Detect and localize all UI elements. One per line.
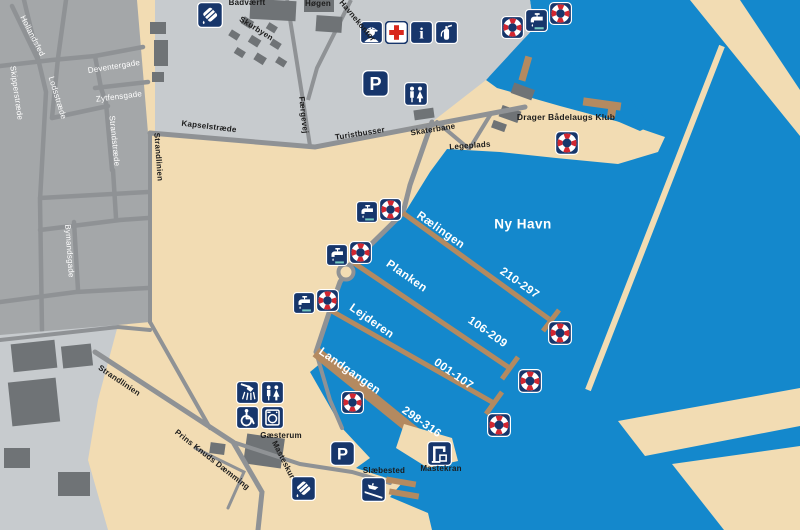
lifebuoy-icon xyxy=(379,198,402,221)
harbor-name-label: Ny Havn xyxy=(494,217,552,231)
place-label-slaebested: Slæbested xyxy=(363,467,405,475)
oil-drum-icon xyxy=(291,476,316,501)
water-tap-icon xyxy=(356,201,378,223)
toilets-icon xyxy=(404,82,428,106)
water-tap-icon xyxy=(326,244,348,266)
lifebuoy-icon xyxy=(501,16,524,39)
wheelchair-icon xyxy=(236,406,259,429)
fire-extinguisher-icon xyxy=(435,21,458,44)
lifebuoy-icon xyxy=(316,289,339,312)
parking-icon xyxy=(362,70,389,97)
place-label-baadvaerft: Bådværft xyxy=(229,0,266,7)
lifebuoy-icon xyxy=(349,241,372,264)
water-tap-icon xyxy=(293,292,315,314)
lifebuoy-icon xyxy=(555,131,579,155)
lifebuoy-icon xyxy=(487,413,511,437)
lifebuoy-icon xyxy=(518,369,542,393)
harbor-map: P xyxy=(0,0,800,530)
parking-icon xyxy=(330,441,355,466)
lifebuoy-icon xyxy=(341,391,364,414)
oil-drum-icon xyxy=(197,2,223,28)
place-label-boat-club: Drager Bådelaugs Klub xyxy=(517,113,615,122)
shower-icon xyxy=(236,381,259,404)
place-label-gaesterum: Gæsterum xyxy=(260,432,302,440)
lifebuoy-icon xyxy=(549,2,572,25)
first-aid-icon xyxy=(385,21,408,44)
place-label-hoegen: Høgen xyxy=(305,0,331,8)
slipway-icon xyxy=(361,477,386,502)
info-icon xyxy=(410,21,433,44)
place-label-mastekran: Mastekran xyxy=(420,465,461,473)
lifebuoy-icon xyxy=(548,321,572,345)
toilets-icon xyxy=(261,381,284,404)
mast-crane-icon xyxy=(427,441,452,466)
water-tap-icon xyxy=(525,9,548,32)
laundry-icon xyxy=(261,406,284,429)
